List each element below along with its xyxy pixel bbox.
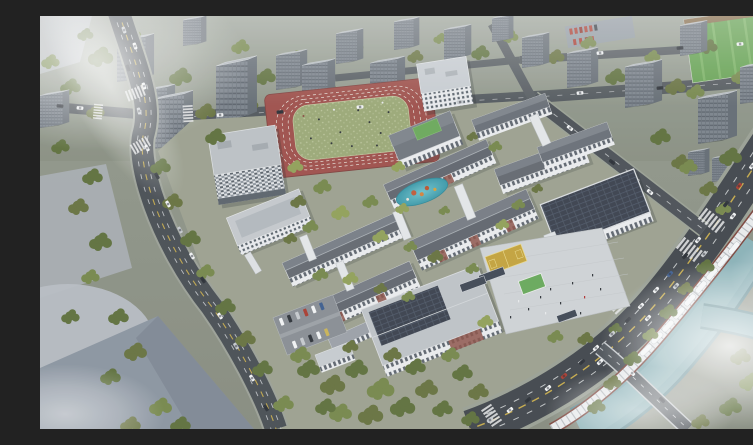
mist-overlay [40,16,753,429]
scene-canvas: Bird's-eye rendering of a school campus … [40,16,753,429]
architectural-rendering: Bird's-eye rendering of a school campus … [40,16,753,429]
